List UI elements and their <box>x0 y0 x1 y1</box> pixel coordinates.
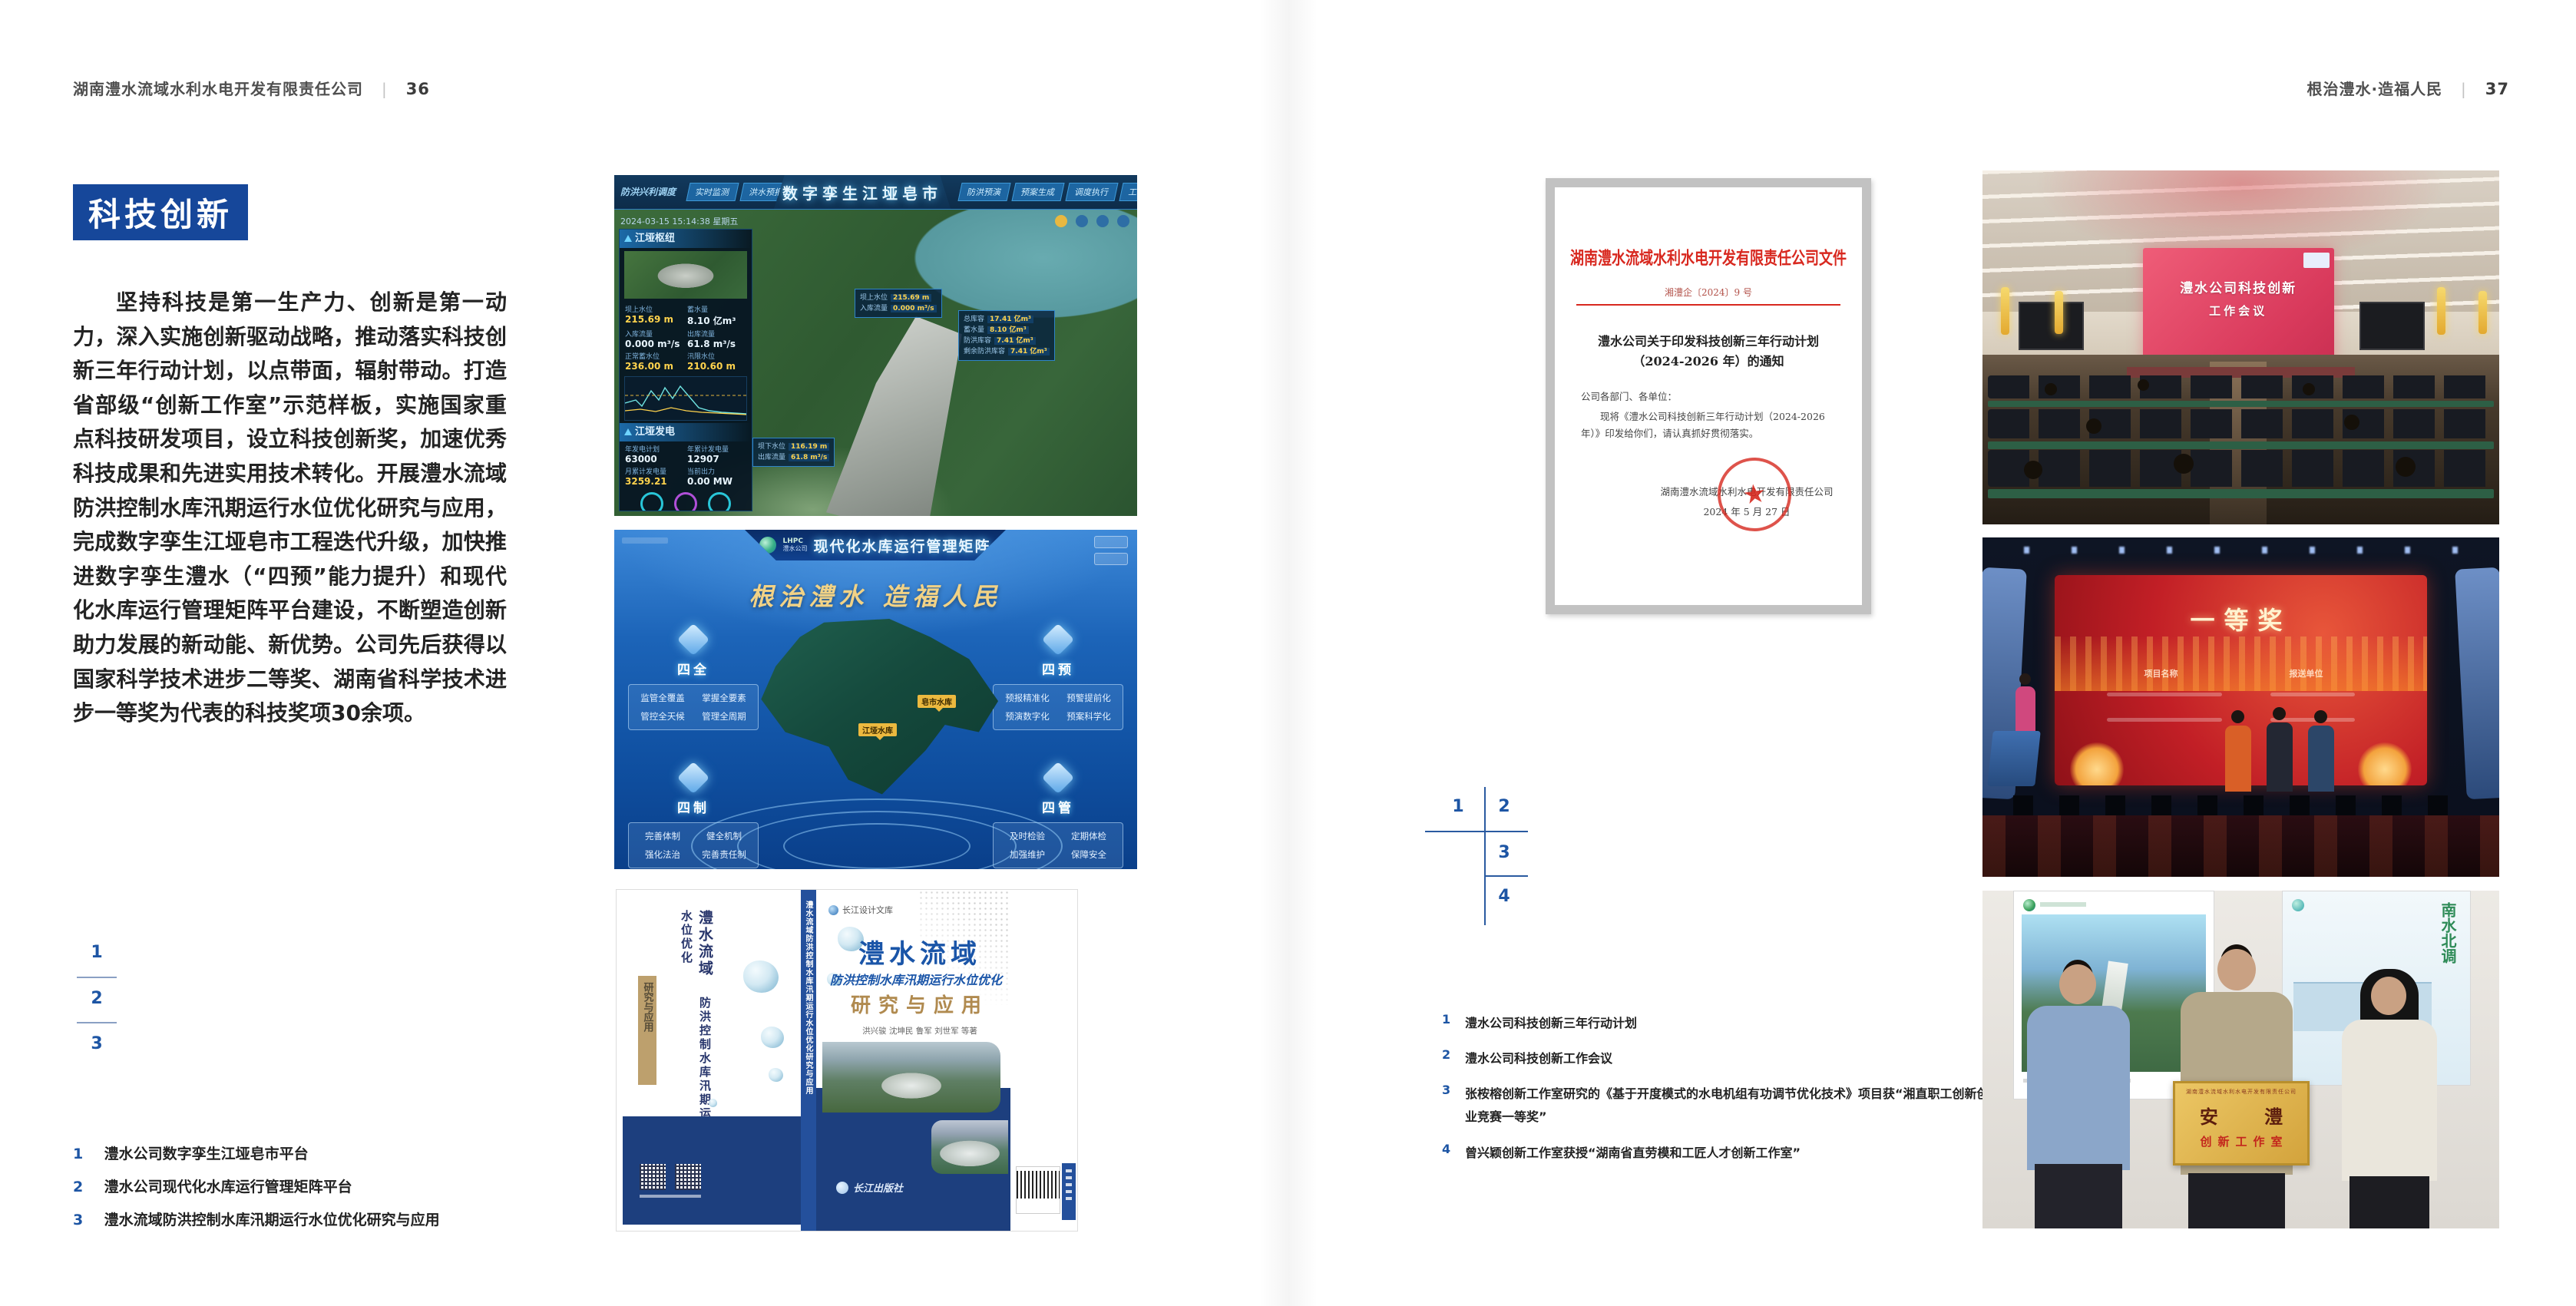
settings-icon[interactable] <box>1117 215 1129 227</box>
tab-realtime-monitoring[interactable]: 实时监测 <box>686 183 739 201</box>
header-divider: | <box>2461 80 2467 98</box>
caption-number: 1 <box>1442 1012 1465 1035</box>
quadrant-icon <box>1042 762 1074 794</box>
quadrant-item: 预案科学化 <box>1060 710 1118 722</box>
stat-value: 0.00 MW <box>687 476 746 487</box>
caption-row: 1 澧水公司数字孪生江垭皂市平台 <box>73 1142 309 1163</box>
caption-number: 2 <box>1442 1047 1465 1070</box>
front-title-main: 澧水流域 <box>839 933 1000 970</box>
caption-row: 2 澧水公司现代化水库运行管理矩阵平台 <box>73 1175 352 1196</box>
screen-col-project: 项目名称 <box>2144 667 2178 679</box>
unit-gauge-icon <box>640 492 663 511</box>
back-cover-band <box>623 1116 801 1225</box>
attendee-head <box>2138 379 2149 391</box>
tab-dispatch-execution[interactable]: 调度执行 <box>1065 183 1118 201</box>
figure-index-1: 1 <box>1447 797 1470 816</box>
caption-row: 2 澧水公司科技创新工作会议 <box>1442 1047 2018 1070</box>
book-spine: 澧水流域防洪控制水库汛期运行水位优化研究与应用 <box>801 890 816 1231</box>
winner-blue-figure <box>2308 726 2334 792</box>
quadrant-item: 完善体制 <box>633 830 692 842</box>
front-cover: 长江设计文库 澧水流域 防洪控制水库汛期运行水位优化 研究与应用 洪兴骏 沈坤民… <box>816 890 1010 1231</box>
popup-label: 总库容 <box>964 316 984 323</box>
caption-number: 3 <box>73 1212 99 1228</box>
colophon-strip <box>1062 1163 1076 1220</box>
reflective-floor <box>1982 815 2499 877</box>
wall-lamp <box>2478 291 2487 334</box>
hub-stats: 坝上水位215.69 m 蓄水量8.10 亿m³ 入库流量0.000 m³/s … <box>620 302 752 374</box>
quadrant-item: 管理全周期 <box>695 710 753 722</box>
seat-row <box>1988 450 2495 487</box>
popup-value: 116.19 m <box>789 443 829 451</box>
plaque-sub-text: 创新工作室 <box>2175 1133 2307 1149</box>
popup-label: 防洪库容 <box>964 337 991 345</box>
quadrant-name: 四预 <box>993 659 1123 678</box>
figure-index-3: 3 <box>1493 843 1516 862</box>
stat-label: 年累计发电量 <box>687 444 746 454</box>
popup-label: 坝下水位 <box>758 443 785 451</box>
plaque-main-text: 安 澧 <box>2175 1102 2307 1129</box>
quadrant-item: 保障安全 <box>1060 848 1118 861</box>
host-head <box>2019 673 2031 685</box>
stat-label: 正常蓄水位 <box>625 351 684 361</box>
header-divider: | <box>382 80 388 98</box>
spine-title: 澧水流域防洪控制水库汛期运行水位优化研究与应用 <box>803 901 814 1131</box>
figure-index-2: 2 <box>75 989 118 1008</box>
back-tan-block: 研究与应用 <box>638 976 656 1085</box>
figure-meeting-photo: 澧水公司科技创新 工作会议 <box>1982 170 2499 524</box>
brand-abbr: LHPC <box>782 538 807 545</box>
figure-management-matrix-platform: LHPC 澧水公司 现代化水库运行管理矩阵 根治澧水 造福人民 四全 监管全覆盖… <box>614 530 1137 869</box>
stat-value: 63000 <box>625 454 684 465</box>
popup-value: 17.41 亿m³ <box>987 316 1033 323</box>
authors-line: 洪兴骏 沈坤民 鲁军 刘世军 等著 <box>839 1025 1000 1037</box>
figure-digital-twin-dashboard: 防洪兴利调度 实时监测 洪水预报 防洪预警 数字孪生江垭皂市 防洪预演 预案生成… <box>614 175 1137 516</box>
colophon-marks <box>1066 1169 1072 1200</box>
caption-number: 1 <box>73 1146 99 1162</box>
figure-official-document: 湖南澧水流域水利水电开发有限责任公司文件 湘澧企〔2024〕9 号 澧水公司关于… <box>1546 178 1871 614</box>
stat-value: 215.69 m <box>625 314 684 325</box>
stat-value: 3259.21 <box>625 476 684 487</box>
figure-index-3: 3 <box>75 1034 118 1053</box>
section-title: 科技创新 <box>88 189 233 236</box>
series-name: 长江设计文库 <box>842 904 893 916</box>
power-stats: 年发电计划63000 年累计发电量12907 月累计发电量3259.21 当前出… <box>620 441 752 489</box>
unit-gauges <box>620 492 752 511</box>
slogan-calligraphy: 根治澧水 造福人民 <box>614 577 1137 613</box>
powerhouse-photo <box>931 1120 1008 1174</box>
figure-index-divider <box>77 1022 117 1023</box>
document-salutation: 公司各部门、各单位： <box>1581 388 1836 405</box>
poster-calligraphy: 南水北调 <box>2437 902 2459 1033</box>
person-head <box>2217 949 2256 990</box>
droplet-art <box>769 1068 783 1082</box>
caption-row: 3 张桉榕创新工作室研究的《基于开度模式的水电机组有功调节优化技术》项目获“湘直… <box>1442 1083 1995 1129</box>
popup-label: 出库流量 <box>758 454 785 461</box>
stat-value: 12907 <box>687 454 746 465</box>
attendee-head <box>2086 418 2101 434</box>
droplet-art <box>743 960 779 993</box>
left-running-header: 湖南澧水流域水利水电开发有限责任公司 | 36 <box>73 77 430 99</box>
stat-label: 蓄水量 <box>687 304 746 314</box>
body-paragraph: 坚持科技是第一生产力、创新是第一动力，深入实施创新驱动战略，推动落实科技创新三年… <box>73 286 507 731</box>
quadrant-name: 四全 <box>628 659 759 678</box>
company-seal: ★ <box>1713 453 1796 536</box>
layers-icon[interactable] <box>1076 215 1088 227</box>
attendee-head <box>2303 383 2315 395</box>
document-number: 湘澧企〔2024〕9 号 <box>1555 286 1862 299</box>
caption-row: 1 澧水公司科技创新三年行动计划 <box>1442 1012 2018 1035</box>
figure-grid-line <box>1425 831 1528 832</box>
left-data-panel: 江垭枢纽 坝上水位215.69 m 蓄水量8.10 亿m³ 入库流量0.000 … <box>619 229 752 511</box>
stat-value: 210.60 m <box>687 361 746 372</box>
platform-header: LHPC 澧水公司 现代化水库运行管理矩阵 <box>745 530 1006 560</box>
mode-label: 防洪兴利调度 <box>620 185 676 198</box>
quadrant-item: 监管全覆盖 <box>633 692 692 704</box>
stat-label: 当前出力 <box>687 466 746 476</box>
qr-caption-bar <box>640 1195 701 1198</box>
tab-plan-generation[interactable]: 预案生成 <box>1011 183 1064 201</box>
skyline-graphic <box>2055 636 2427 691</box>
stat-label: 坝上水位 <box>625 304 684 314</box>
figure-index-divider <box>77 977 117 978</box>
slogan-header: 根治澧水·造福人民 <box>2306 80 2442 98</box>
quadrant-icon <box>677 623 709 656</box>
popup-value: 61.8 m³/s <box>789 454 829 461</box>
quadrant-item: 强化法治 <box>633 848 692 861</box>
person-skirt <box>2349 1176 2429 1228</box>
popup-value: 0.000 m³/s <box>891 305 937 312</box>
map-label-jiangya: 江垭水库 <box>858 723 897 736</box>
person-white-tee <box>2342 1020 2437 1181</box>
stat-label: 年发电计划 <box>625 444 684 454</box>
stat-value: 0.000 m³/s <box>625 339 684 349</box>
stage-spotlights <box>2024 547 2458 554</box>
document-body: 现将《澧水公司科技创新三年行动计划（2024-2026 年）》印发给你们，请认真… <box>1581 408 1836 442</box>
brand-name: 澧水公司 <box>782 545 807 552</box>
figure-index-2: 2 <box>1493 797 1516 816</box>
caption-text: 澧水公司科技创新工作会议 <box>1465 1047 2018 1070</box>
figure-index-1: 1 <box>75 943 118 962</box>
caption-number: 4 <box>1442 1142 1465 1165</box>
stat-value: 236.00 m <box>625 361 684 372</box>
desk-strip <box>1988 401 2495 407</box>
caption-number: 3 <box>1442 1083 1465 1129</box>
series-badge: 长江设计文库 <box>828 904 893 916</box>
dashboard-title: 数字孪生江垭皂市 <box>774 175 951 209</box>
front-title-tail: 研究与应用 <box>839 990 1000 1018</box>
stat-value: 8.10 亿m³ <box>687 314 746 327</box>
back-title-tail: 研究与应用 <box>640 982 655 1079</box>
radar-ring <box>783 823 971 869</box>
caption-text: 澧水公司数字孪生江垭皂市平台 <box>104 1146 309 1162</box>
moving-head-lights <box>2013 795 2468 818</box>
popup-label: 入库流量 <box>860 305 888 312</box>
seat-row <box>1988 375 2495 398</box>
locate-icon[interactable] <box>1096 215 1109 227</box>
wall-lamp <box>2055 291 2063 334</box>
figure-grid-line <box>1484 787 1486 925</box>
figure-studio-group-photo: 南水北调 湖南澧水流域水利水电开发有限责任公司 安 澧 创新工作室 <box>1982 891 2499 1228</box>
wall-lamp <box>2437 287 2445 335</box>
figure-book-cover: 澧水流域 防洪控制水库汛期运行水位优化 研究与应用 澧水流域防洪控制水库汛期运行… <box>616 889 1078 1232</box>
document-subject-line1: 澧水公司关于印发科技创新三年行动计划 <box>1570 332 1847 352</box>
quadrant-siyu: 四预 预报精准化 预警提前化 预演数字化 预案科学化 <box>993 628 1123 730</box>
tab-flood-rehearsal[interactable]: 防洪预演 <box>957 183 1010 201</box>
quadrant-item: 定期体检 <box>1060 830 1118 842</box>
plaque-header-text: 湖南澧水流域水利水电开发有限责任公司 <box>2175 1088 2307 1096</box>
section-title-badge: 科技创新 <box>73 184 248 240</box>
platform-title: 现代化水库运行管理矩阵 <box>813 535 990 556</box>
map-popup-capacity: 总库容17.41 亿m³ 蓄水量8.10 亿m³ 防洪库容7.41 亿m³ 剩余… <box>958 310 1055 361</box>
golden-orb <box>2070 742 2124 785</box>
presenter-suit-figure <box>2267 722 2293 792</box>
user-icon[interactable] <box>1055 215 1067 227</box>
person-head <box>2371 977 2406 1015</box>
publisher-block: 长江出版社 <box>836 1180 903 1195</box>
slide-logo <box>2303 253 2330 268</box>
popup-value: 7.41 亿m³ <box>1008 348 1050 355</box>
screen-title-line1: 澧水公司科技创新 <box>2143 277 2334 296</box>
front-title-sub: 防洪控制水库汛期运行水位优化 <box>824 970 1008 988</box>
right-running-header: 根治澧水·造福人民 | 37 <box>2306 77 2509 99</box>
clock-widget <box>622 537 668 544</box>
panel-title: 江垭发电 <box>620 423 752 441</box>
caption-row: 3 澧水流域防洪控制水库汛期运行水位优化研究与应用 <box>73 1208 440 1229</box>
screen-col-unit: 报送单位 <box>2289 667 2323 679</box>
page-number-right: 37 <box>2485 80 2509 98</box>
seal-star-icon: ★ <box>1741 478 1768 511</box>
publisher-name: 长江出版社 <box>853 1180 903 1195</box>
map-popup-upstream: 坝上水位215.69 m 入库流量0.000 m³/s <box>855 289 942 318</box>
caption-number: 2 <box>73 1179 99 1195</box>
popup-value: 7.41 亿m³ <box>994 337 1036 345</box>
stat-value: 61.8 m³/s <box>687 339 746 349</box>
company-name: 湖南澧水流域水利水电开发有限责任公司 <box>73 80 363 98</box>
quadrant-item: 预报精准化 <box>998 692 1057 704</box>
person-blue-polo <box>2027 1006 2130 1170</box>
desk-strip <box>1988 489 2495 498</box>
wall-tv <box>2019 302 2084 351</box>
quadrant-item: 管控全天候 <box>633 710 692 722</box>
winner-orange-figure <box>2225 726 2251 792</box>
award-title: 一等奖 <box>2055 601 2427 636</box>
stat-label: 入库流量 <box>625 329 684 339</box>
popup-label: 剩余防洪库容 <box>964 348 1005 355</box>
brand-block: LHPC 澧水公司 <box>782 538 807 552</box>
person-head <box>2059 964 2096 1004</box>
qr-code <box>640 1164 666 1190</box>
popup-value: 8.10 亿m³ <box>987 326 1029 334</box>
screen-text-bar <box>2270 693 2355 696</box>
desk-strip <box>1988 441 2495 449</box>
unit-gauge-icon <box>674 492 697 511</box>
caption-text: 澧水流域防洪控制水库汛期运行水位优化研究与应用 <box>104 1212 440 1228</box>
lhpc-logo-icon <box>759 537 776 554</box>
caption-text: 澧水公司现代化水库运行管理矩阵平台 <box>104 1179 352 1195</box>
person-trousers <box>2188 1173 2285 1228</box>
attendee-head <box>2045 383 2057 395</box>
popup-label: 蓄水量 <box>964 326 984 334</box>
tab-project-inspection[interactable]: 工程巡视 <box>1119 183 1137 201</box>
attendee-head <box>2024 461 2042 479</box>
menu-button[interactable] <box>1094 553 1128 565</box>
qr-code <box>675 1164 701 1190</box>
watershed-3d-map <box>756 619 998 802</box>
lhpc-logo-icon <box>2292 899 2304 911</box>
quadrant-icon <box>677 762 709 794</box>
document-subject-line2: （2024-2026 年）的通知 <box>1570 352 1847 372</box>
droplet-art <box>709 1099 717 1107</box>
map-label-zaoshi: 皂市水库 <box>918 695 956 708</box>
map-popup-downstream: 坝下水位116.19 m 出库流量61.8 m³/s <box>752 438 835 467</box>
poster-logo-text-bar <box>2040 902 2086 907</box>
series-logo-icon <box>828 905 838 915</box>
host-figure <box>2015 686 2035 734</box>
quadrant-item: 预演数字化 <box>998 710 1057 722</box>
lhpc-logo-icon <box>2023 899 2035 911</box>
wall-tv <box>2359 302 2425 351</box>
panel-title: 江垭枢纽 <box>620 230 752 248</box>
host-podium <box>1987 731 2041 786</box>
close-button[interactable] <box>1094 536 1128 548</box>
figure-index-4: 4 <box>1493 887 1516 906</box>
unit-gauge-icon <box>708 492 731 511</box>
document-headline: 湖南澧水流域水利水电开发有限责任公司文件 <box>1562 245 1854 270</box>
water-level-chart <box>624 376 747 421</box>
quadrant-item: 掌握全要素 <box>695 692 753 704</box>
quadrant-siquan: 四全 监管全覆盖 掌握全要素 管控全天候 管理全周期 <box>628 628 759 730</box>
stat-label: 出库流量 <box>687 329 746 339</box>
stat-label: 汛限水位 <box>687 351 746 361</box>
red-rule <box>1576 304 1840 306</box>
screen-text-bar <box>2107 693 2222 696</box>
tab-group-right: 防洪预演 预案生成 调度执行 工程巡视 <box>960 183 1137 201</box>
caption-text: 张桉榕创新工作室研究的《基于开度模式的水电机组有功调节优化技术》项目获“湘直职工… <box>1465 1083 1995 1129</box>
timestamp: 2024-03-15 15:14:38 星期五 <box>620 215 738 227</box>
back-title-main: 澧水流域 <box>696 910 713 977</box>
droplet-art <box>761 1027 784 1048</box>
figure-grid-line <box>1484 875 1528 877</box>
person-trousers <box>2035 1164 2122 1228</box>
innovation-studio-plaque: 湖南澧水流域水利水电开发有限责任公司 安 澧 创新工作室 <box>2173 1081 2310 1165</box>
isbn-barcode <box>1016 1166 1060 1214</box>
publisher-logo-icon <box>836 1182 848 1194</box>
side-led-panel <box>2455 567 2499 800</box>
wall-lamp <box>2001 287 2009 335</box>
dam-photo <box>822 1042 1000 1113</box>
attendee-head <box>2174 454 2194 474</box>
figure-award-stage-photo: 一等奖 项目名称 报送单位 <box>1982 537 2499 877</box>
screen-title-line2: 工作会议 <box>2143 303 2334 319</box>
screen-text-bar <box>2107 718 2222 722</box>
popup-label: 坝上水位 <box>860 294 888 302</box>
popup-value: 215.69 m <box>891 294 931 302</box>
quadrant-icon <box>1042 623 1074 656</box>
dam-thumbnail <box>624 251 747 299</box>
caption-text: 澧水公司科技创新三年行动计划 <box>1465 1012 2018 1035</box>
stat-label: 月累计发电量 <box>625 466 684 476</box>
quadrant-item: 预警提前化 <box>1060 692 1118 704</box>
page-number-left: 36 <box>406 80 430 98</box>
toolbar-icons <box>1050 215 1129 230</box>
projection-screen: 澧水公司科技创新 工作会议 <box>2143 248 2334 369</box>
seat-row <box>1988 409 2495 438</box>
page-gutter-shadow <box>1259 0 1318 1306</box>
golden-orb <box>2358 742 2412 785</box>
